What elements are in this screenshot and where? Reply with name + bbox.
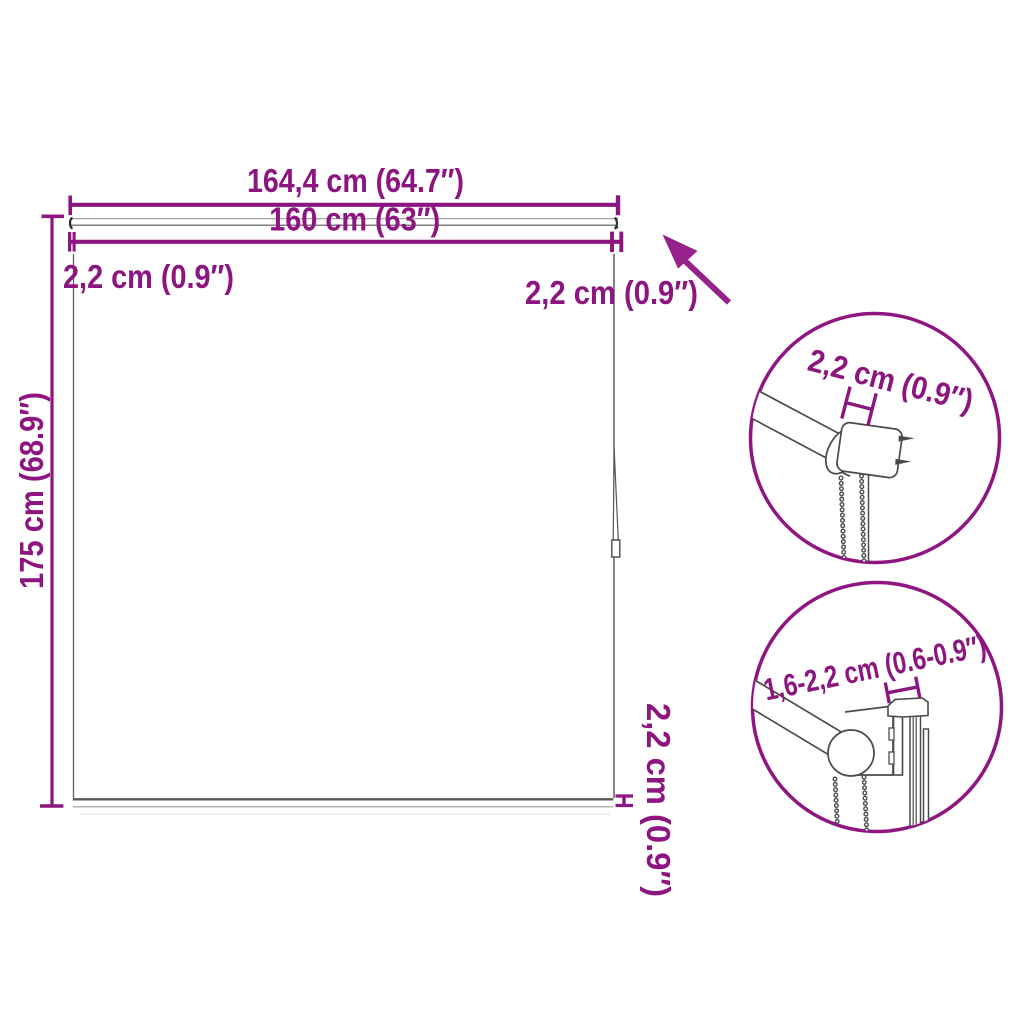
svg-text:160 cm (63″): 160 cm (63″) [269, 201, 440, 238]
svg-text:175 cm (68.9″): 175 cm (68.9″) [13, 392, 50, 589]
svg-text:2,2 cm (0.9″): 2,2 cm (0.9″) [525, 274, 698, 311]
svg-text:2,2 cm (0.9″): 2,2 cm (0.9″) [640, 703, 677, 897]
svg-text:2,2 cm (0.9″): 2,2 cm (0.9″) [63, 258, 234, 295]
svg-text:164,4 cm (64.7″): 164,4 cm (64.7″) [247, 162, 464, 199]
